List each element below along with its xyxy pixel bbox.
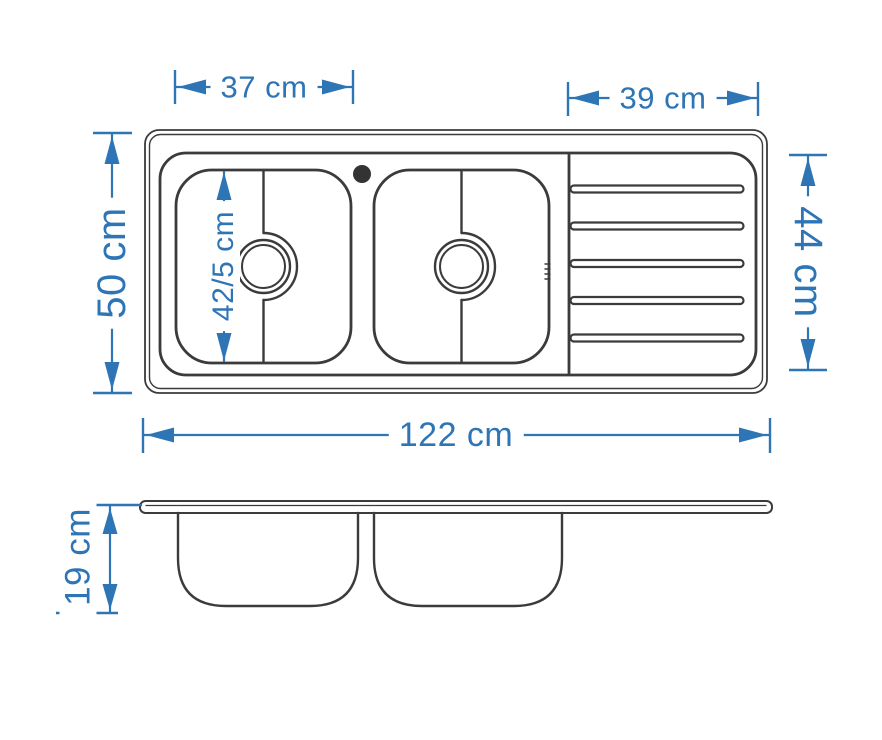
drainboard-groove xyxy=(571,186,744,193)
right-bowl-centerline-bulge xyxy=(462,233,496,300)
drawing-canvas: 37 cm 39 cm 50 cm 42/5 cm 44 cm 122 cm 1… xyxy=(0,0,882,740)
arrowhead-up-icon xyxy=(103,508,118,534)
sink-line-art xyxy=(0,0,882,740)
left-drain-outer xyxy=(237,240,290,293)
arrowhead-up-icon xyxy=(217,172,232,200)
left-drain-inner xyxy=(242,245,285,288)
arrowhead-right-icon xyxy=(727,91,755,106)
faucet-hole xyxy=(353,165,371,183)
arrowhead-down-icon xyxy=(105,362,120,390)
dim-label-drainboard-width: 39 cm xyxy=(610,82,717,115)
side-right-bowl-profile xyxy=(374,513,562,606)
side-view xyxy=(140,501,772,606)
drainboard-groove xyxy=(571,335,744,342)
arrowhead-down-icon xyxy=(103,584,118,610)
dim-label-bowl-depth: 19 cm xyxy=(60,498,97,616)
drainboard-groove xyxy=(571,297,744,304)
dim-label-overall-length: 122 cm xyxy=(389,417,524,453)
arrowhead-left-icon xyxy=(178,80,206,95)
side-left-bowl-profile xyxy=(178,513,358,606)
dim-label-overall-depth: 50 cm xyxy=(91,197,133,328)
right-drain-outer xyxy=(435,240,488,293)
drainboard-groove xyxy=(571,223,744,230)
left-bowl-centerline-bulge xyxy=(264,233,297,300)
arrowhead-down-icon xyxy=(801,339,816,367)
arrowhead-up-icon xyxy=(105,136,120,164)
arrowhead-left-icon xyxy=(146,428,174,443)
drainboard-groove xyxy=(571,260,744,267)
arrowhead-right-icon xyxy=(739,428,767,443)
outer-rim-inner-line xyxy=(150,135,763,389)
arrowhead-left-icon xyxy=(571,91,599,106)
drainboard-grooves xyxy=(571,186,744,342)
arrowhead-right-icon xyxy=(322,80,350,95)
dim-label-bowl-inner-length: 42/5 cm xyxy=(208,201,240,331)
dim-label-drainboard-depth: 44 cm xyxy=(787,196,829,327)
side-deck-slab xyxy=(140,501,772,513)
right-drain-inner xyxy=(440,245,483,288)
dim-label-left-bowl-width: 37 cm xyxy=(211,71,318,104)
arrowhead-down-icon xyxy=(217,333,232,361)
arrowhead-up-icon xyxy=(801,158,816,186)
